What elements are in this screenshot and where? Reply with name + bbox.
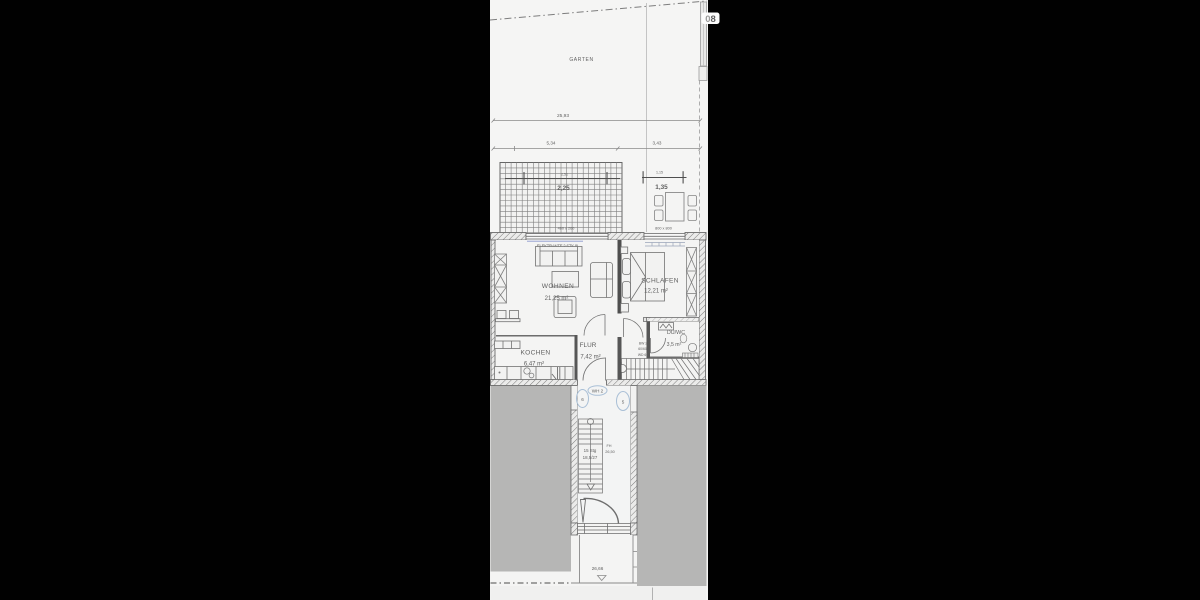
svg-text:FH: FH: [606, 444, 611, 448]
svg-text:FLUR: FLUR: [580, 342, 597, 349]
svg-text:18,5/27: 18,5/27: [583, 455, 598, 460]
svg-text:KOCHEN: KOCHEN: [520, 350, 550, 357]
svg-text:800 x 800: 800 x 800: [655, 227, 672, 231]
svg-text:1,35: 1,35: [655, 184, 668, 191]
svg-text:12,21 m²: 12,21 m²: [644, 289, 668, 295]
svg-text:6: 6: [581, 397, 584, 402]
svg-text:WH 2: WH 2: [592, 389, 604, 394]
svg-text:460 x 260: 460 x 260: [558, 227, 575, 231]
svg-text:1,15: 1,15: [656, 171, 663, 175]
svg-text:26,50: 26,50: [605, 450, 615, 454]
svg-text:3,5 m²: 3,5 m²: [667, 342, 682, 348]
svg-text:60/60: 60/60: [638, 347, 647, 351]
svg-text:BW 2: BW 2: [639, 342, 647, 346]
svg-text:DU/WC: DU/WC: [667, 330, 685, 336]
svg-text:21,25 m²: 21,25 m²: [545, 296, 569, 302]
svg-text:GARTEN: GARTEN: [569, 57, 593, 63]
svg-text:SCHLAFEN: SCHLAFEN: [641, 278, 679, 285]
svg-text:2,25: 2,25: [557, 185, 570, 192]
svg-text:5: 5: [622, 400, 625, 405]
svg-text:25,93: 25,93: [557, 113, 569, 119]
svg-text:26,66: 26,66: [592, 566, 604, 571]
svg-text:WOHNEN: WOHNEN: [542, 283, 574, 290]
svg-text:2,51: 2,51: [561, 173, 568, 177]
svg-text:15 Stg: 15 Stg: [584, 448, 597, 453]
svg-text:08: 08: [705, 14, 716, 25]
svg-text:WD 60: WD 60: [638, 353, 648, 357]
svg-text:3,43: 3,43: [653, 141, 662, 146]
svg-text:5,34: 5,34: [547, 141, 556, 146]
